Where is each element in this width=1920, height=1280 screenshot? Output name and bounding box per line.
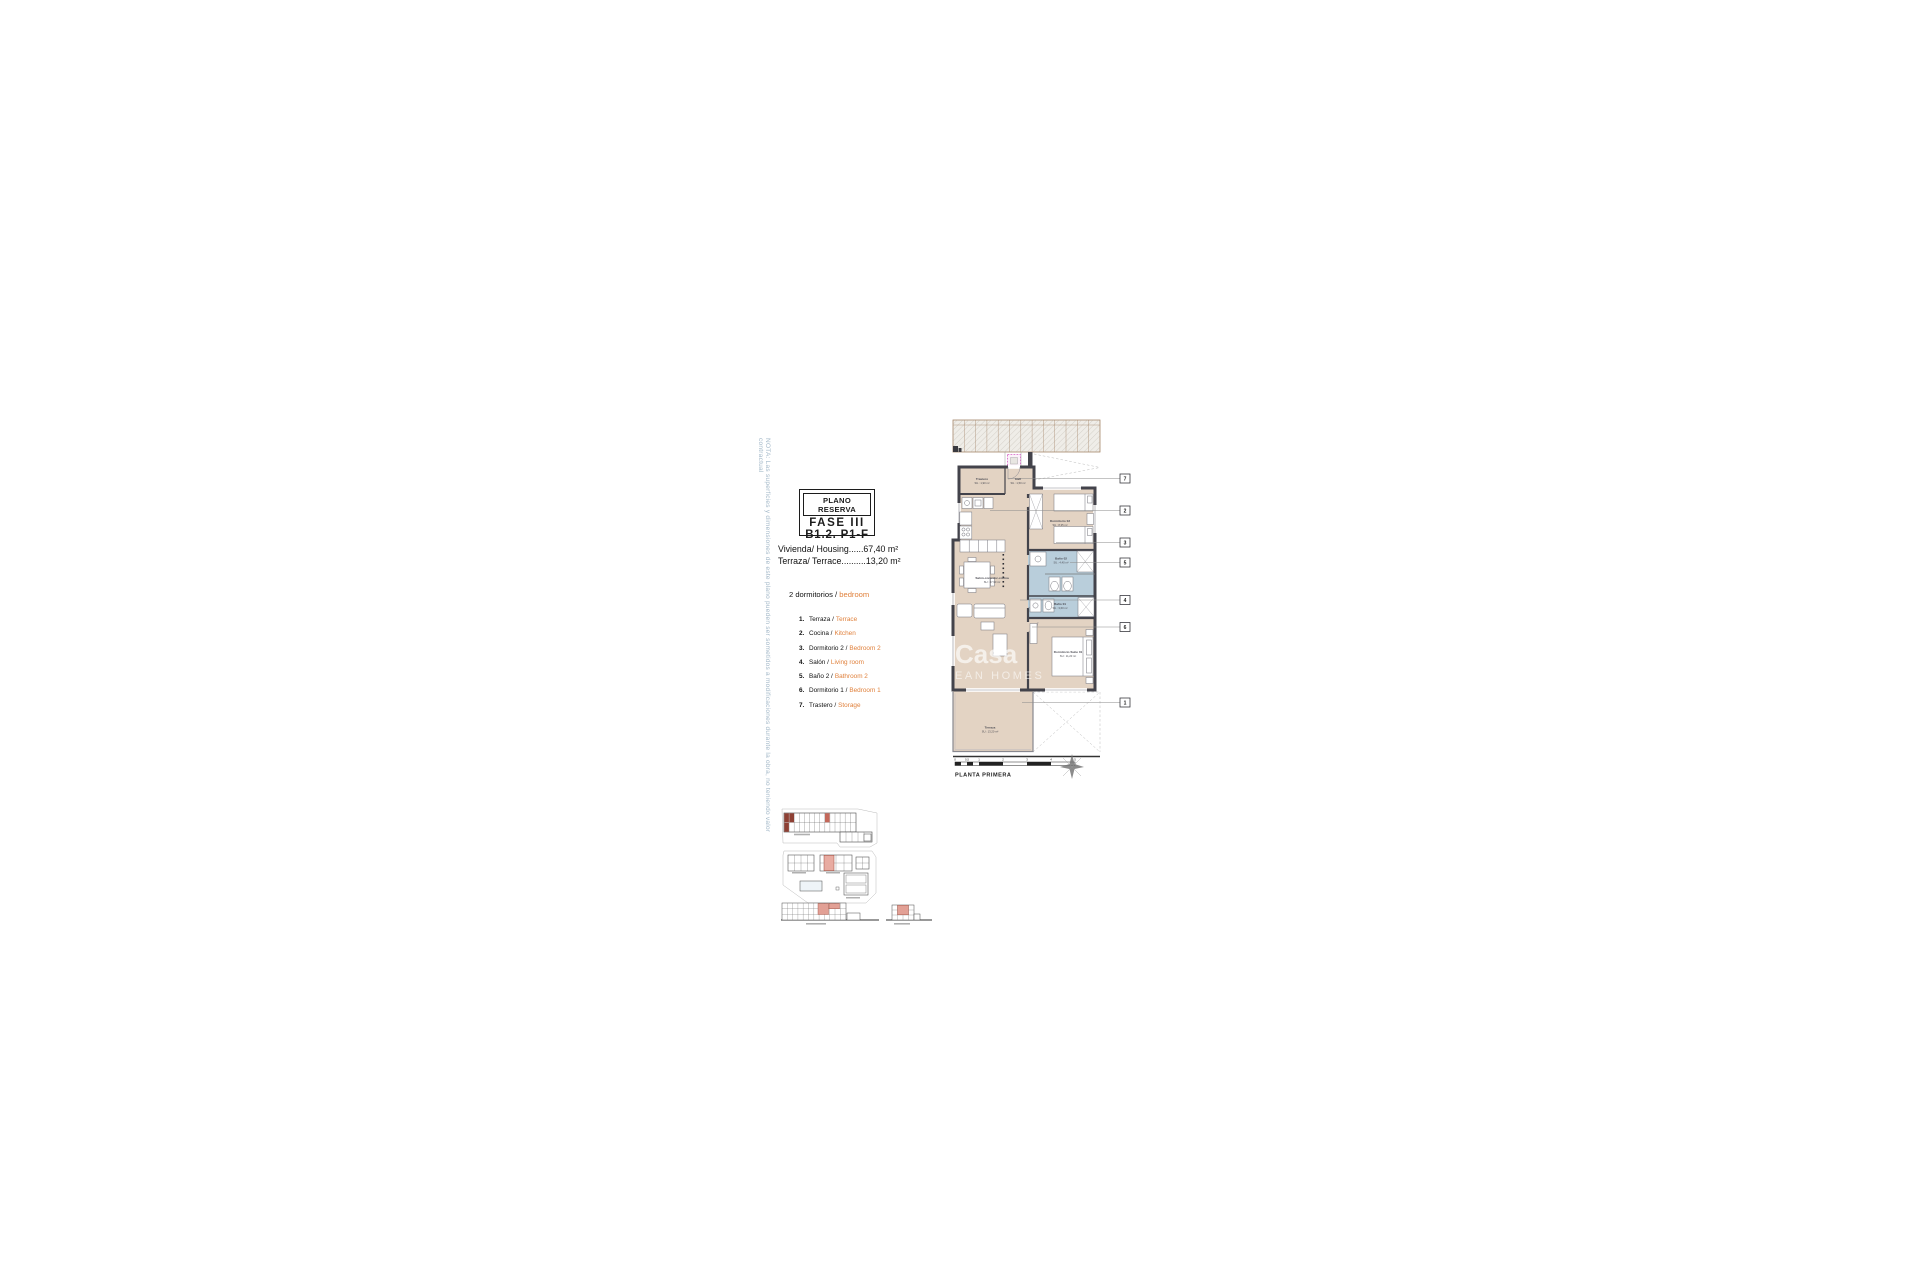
svg-text:Trastero: Trastero [976,477,988,481]
highlighted-unit [898,905,909,915]
svg-text:Dormitorio Suite 01: Dormitorio Suite 01 [1054,650,1083,654]
svg-text:5: 5 [1074,758,1076,762]
svg-text:0,5: 0,5 [965,758,969,762]
svg-text:5: 5 [1124,560,1127,566]
svg-text:Hall: Hall [1015,477,1021,481]
micro-label [794,834,810,836]
svg-text:2: 2 [1124,508,1127,514]
drawing-sheet: NOTA: Las superficies y dimensiones de e… [0,0,1920,1280]
legend-item: 3.Dormitorio 2 /Bedroom 2 [799,642,881,656]
legend-item: 6.Dormitorio 1 /Bedroom 1 [799,684,881,698]
surface-areas: Vivienda/ Housing......67,40 m² Terraza/… [778,544,901,567]
bedrooms-en: bedroom [839,590,869,599]
svg-text:SU.: 1,50 m²: SU.: 1,50 m² [1010,481,1025,485]
site-key-plan [783,851,876,903]
svg-text:Terraza: Terraza [985,726,996,730]
legend-item: 4.Salón /Living room [799,656,881,670]
scale-bar: 0 0,5 1 2 3 4 5 PLANTA PRIMERA [954,758,1076,779]
unit-reference: B1.2. P1-F [800,529,874,541]
block-key-plan [782,809,877,847]
legend-item: 7.Trastero /Storage [799,699,881,713]
svg-text:3: 3 [1124,540,1127,546]
disclaimer-note: NOTA: Las superficies y dimensiones de e… [757,438,771,868]
phase-label: FASE III [800,517,874,529]
svg-text:2: 2 [1002,758,1004,762]
svg-text:1: 1 [1124,700,1127,706]
svg-text:SU.: 4,40 m²: SU.: 4,40 m² [1053,561,1068,565]
micro-label [826,872,840,874]
roof-hatch-band [953,420,1100,452]
svg-text:SU.: 3,60 m²: SU.: 3,60 m² [1052,606,1067,610]
svg-text:Salón-comedor-cocina: Salón-comedor-cocina [975,576,1009,580]
svg-text:3: 3 [1026,758,1028,762]
svg-text:Baño 01: Baño 01 [1054,602,1066,606]
room-legend: 1.Terraza /Terrace 2.Cocina /Kitchen 3.D… [799,613,881,713]
svg-text:6: 6 [1124,625,1127,631]
callout-boxes: 7 2 3 5 4 6 1 [1120,474,1130,707]
svg-text:4: 4 [1124,598,1127,604]
svg-text:4: 4 [1050,758,1052,762]
micro-label [894,923,910,925]
floor-plan: 7 2 3 5 4 6 1 Trastero SU.: 1,90 m² Hall… [950,410,1140,802]
housing-area: Vivienda/ Housing......67,40 m² [778,544,901,556]
title-block: PLANO RESERVA FASE III B1.2. P1-F [799,489,875,536]
highlighted-unit [818,904,829,915]
micro-label [846,897,860,899]
bedrooms-es: 2 dormitorios / [789,590,837,599]
micro-label [806,923,826,925]
plan-type-label: PLANO RESERVA [803,493,871,516]
svg-text:SU.: 1,90 m²: SU.: 1,90 m² [974,481,989,485]
compass-icon [1060,754,1084,779]
legend-item: 2.Cocina /Kitchen [799,627,881,641]
svg-text:PLANTA PRIMERA: PLANTA PRIMERA [955,773,1011,779]
svg-text:0: 0 [954,758,956,762]
svg-text:Dormitorio 02: Dormitorio 02 [1050,519,1070,523]
svg-text:7: 7 [1124,476,1127,482]
key-plans [780,803,940,935]
svg-text:SU.: 27,90 m²: SU.: 27,90 m² [984,580,1001,584]
highlighted-unit [824,855,834,870]
bedrooms-line: 2 dormitorios / bedroom [789,590,869,599]
pool [800,881,822,891]
svg-text:Baño 02: Baño 02 [1055,557,1067,561]
svg-text:1: 1 [978,758,980,762]
legend-item: 5.Baño 2 /Bathroom 2 [799,670,881,684]
entry-walkway [1005,452,1021,467]
svg-text:SU.: 11,20 m²: SU.: 11,20 m² [1060,654,1076,658]
micro-label [792,872,806,874]
svg-text:SU.: 13,20 m²: SU.: 13,20 m² [982,730,999,734]
svg-text:SU.: 8,35 m²: SU.: 8,35 m² [1052,523,1067,527]
legend-item: 1.Terraza /Terrace [799,613,881,627]
terrace-area: Terraza/ Terrace..........13,20 m² [778,556,901,568]
elevation-drawings [781,903,932,925]
highlighted-unit [829,904,840,909]
dining-table [960,558,995,593]
